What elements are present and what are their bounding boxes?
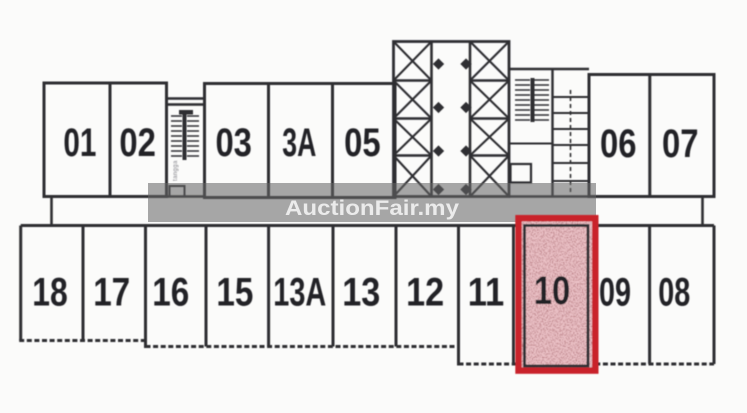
svg-text:18: 18 (32, 271, 68, 315)
svg-text:06: 06 (600, 122, 637, 166)
svg-text:10: 10 (534, 269, 571, 313)
svg-text:12: 12 (406, 271, 444, 315)
svg-text:03: 03 (215, 121, 252, 165)
svg-text:11: 11 (468, 271, 505, 315)
svg-text:09: 09 (599, 271, 631, 315)
svg-text:3A: 3A (282, 121, 316, 165)
svg-text:AuctionFair.my: AuctionFair.my (285, 196, 459, 220)
svg-text:15: 15 (216, 271, 253, 315)
svg-text:07: 07 (662, 122, 699, 166)
svg-text:08: 08 (658, 271, 690, 315)
svg-text:02: 02 (119, 121, 156, 165)
svg-text:13A: 13A (273, 271, 326, 315)
svg-text:13: 13 (342, 271, 380, 315)
svg-text:tangga: tangga (173, 160, 179, 181)
svg-text:05: 05 (344, 121, 381, 165)
svg-text:17: 17 (93, 271, 130, 315)
svg-text:01: 01 (63, 121, 96, 165)
svg-text:16: 16 (152, 271, 189, 315)
